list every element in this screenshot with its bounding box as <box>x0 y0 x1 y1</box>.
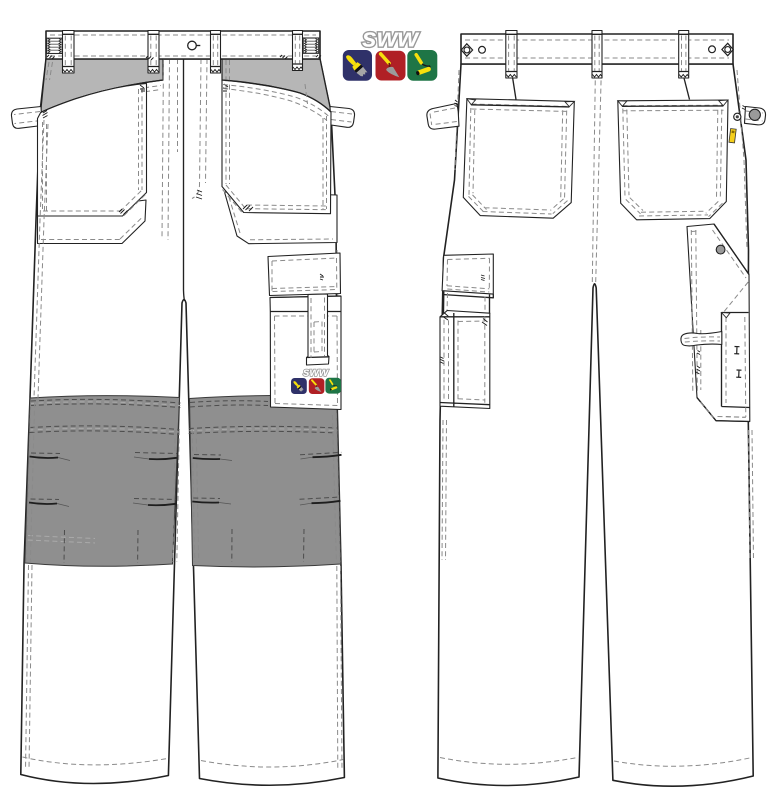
svg-text:sww: sww <box>362 23 420 53</box>
svg-text:sww: sww <box>303 365 329 379</box>
